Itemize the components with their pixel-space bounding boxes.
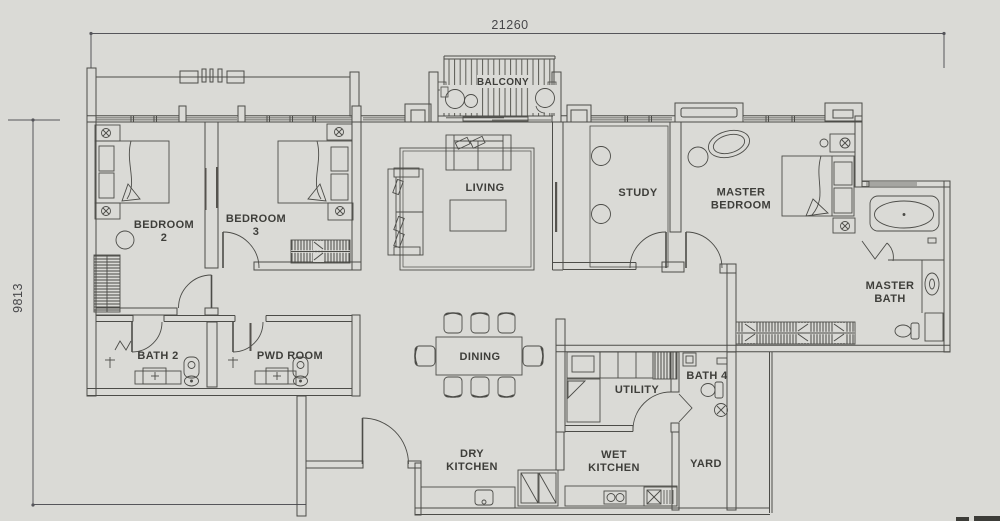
- svg-text:21260: 21260: [491, 18, 528, 32]
- svg-text:3: 3: [253, 226, 260, 238]
- svg-text:STUDY: STUDY: [618, 187, 658, 199]
- svg-text:BALCONY: BALCONY: [477, 77, 529, 88]
- svg-text:MASTER: MASTER: [717, 187, 766, 199]
- svg-text:PWD ROOM: PWD ROOM: [257, 350, 323, 362]
- svg-text:BEDROOM: BEDROOM: [711, 200, 771, 212]
- svg-text:MASTER: MASTER: [866, 280, 915, 292]
- svg-text:BATH: BATH: [874, 293, 905, 305]
- svg-text:BATH 4: BATH 4: [686, 370, 728, 382]
- svg-text:LIVING: LIVING: [465, 182, 504, 194]
- svg-text:BATH 2: BATH 2: [137, 350, 178, 362]
- svg-text:UTILITY: UTILITY: [615, 384, 660, 396]
- svg-text:9813: 9813: [11, 283, 25, 313]
- svg-text:BEDROOM: BEDROOM: [226, 213, 286, 225]
- svg-text:DINING: DINING: [460, 351, 501, 363]
- svg-text:DRY: DRY: [460, 448, 484, 460]
- svg-text:WET: WET: [601, 449, 627, 461]
- svg-text:KITCHEN: KITCHEN: [588, 462, 640, 474]
- svg-text:2: 2: [161, 232, 168, 244]
- svg-text:BEDROOM: BEDROOM: [134, 219, 194, 231]
- svg-text:KITCHEN: KITCHEN: [446, 461, 498, 473]
- svg-text:YARD: YARD: [690, 458, 722, 470]
